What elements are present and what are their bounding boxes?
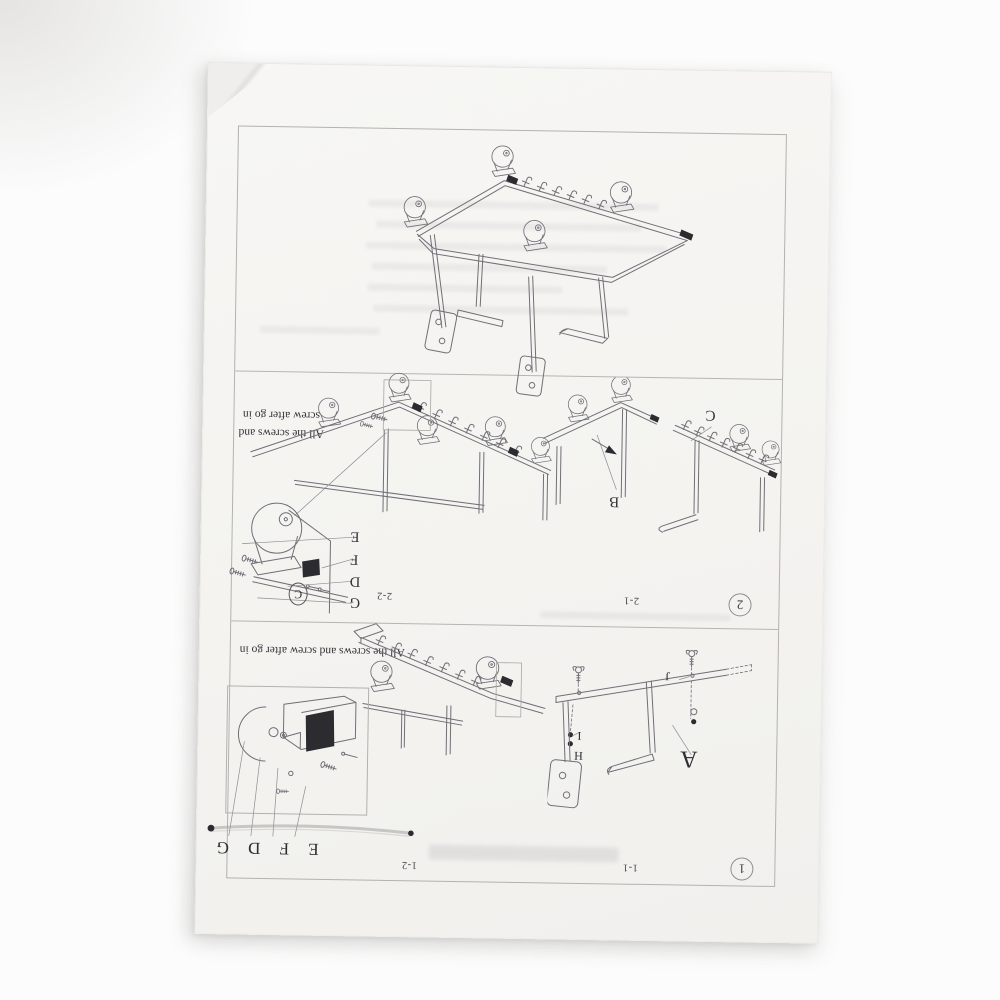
figure-caption-2-2: 2-2 bbox=[377, 590, 393, 601]
step2-1-drawing bbox=[533, 376, 788, 580]
screw-icon bbox=[242, 555, 259, 565]
insert-arrow bbox=[592, 439, 617, 454]
part-label-c: C bbox=[705, 406, 715, 423]
wingbolt-icon bbox=[573, 667, 584, 683]
instruction-sheet-paper: All the screws and screw after go in bbox=[194, 62, 832, 944]
vertical-arm bbox=[562, 702, 571, 762]
hook-bolts bbox=[520, 175, 607, 211]
part-label-g: G bbox=[217, 833, 230, 857]
part-label-h: H bbox=[574, 748, 583, 763]
part-label-b: B bbox=[609, 492, 619, 509]
figure-caption-2-1: 2-1 bbox=[624, 595, 640, 606]
caster-closeup bbox=[251, 503, 302, 576]
detail-callout-box bbox=[496, 663, 522, 717]
caster-icon bbox=[476, 657, 502, 690]
part-label-e: E bbox=[308, 835, 319, 859]
photo-of-instruction-sheet: All the screws and screw after go in bbox=[0, 0, 1000, 1000]
support-bar bbox=[556, 667, 727, 706]
part-label-a: A bbox=[680, 745, 698, 772]
bleed-through-text bbox=[428, 845, 618, 863]
rail-end-cap bbox=[500, 676, 513, 687]
part-label-i: I bbox=[577, 728, 581, 743]
step1-1-drawing bbox=[547, 640, 786, 814]
frame-rails bbox=[416, 179, 691, 283]
caster-icon bbox=[371, 661, 395, 692]
part-label-f: F bbox=[279, 834, 289, 858]
caster-icon bbox=[403, 144, 634, 252]
part-label-d: D bbox=[350, 572, 361, 589]
hook-foot bbox=[607, 753, 654, 775]
rubber-pad bbox=[302, 559, 320, 578]
assembled-rack-drawing bbox=[369, 141, 708, 401]
step1-2-drawing bbox=[346, 615, 564, 760]
right-subassembly bbox=[659, 418, 782, 534]
screw-icon bbox=[229, 568, 246, 578]
paper-corner-fold bbox=[208, 63, 275, 118]
wingbolt-icon bbox=[686, 650, 697, 666]
part-label-d: D bbox=[248, 834, 261, 858]
leader-lines bbox=[572, 675, 692, 755]
figure-caption-1-2: 1-2 bbox=[401, 859, 417, 870]
left-subassembly bbox=[542, 376, 660, 506]
part-label-e: E bbox=[350, 527, 359, 544]
part-label-g: G bbox=[349, 593, 360, 610]
foot-plate bbox=[547, 759, 582, 808]
part-label-f: F bbox=[350, 550, 358, 567]
part-label-j: J bbox=[665, 668, 670, 683]
rail-end-plate bbox=[354, 623, 383, 642]
hook-bolts bbox=[374, 634, 482, 687]
part-labels-row: E F D G bbox=[217, 833, 319, 859]
figure-caption-1-1: 1-1 bbox=[622, 862, 638, 873]
